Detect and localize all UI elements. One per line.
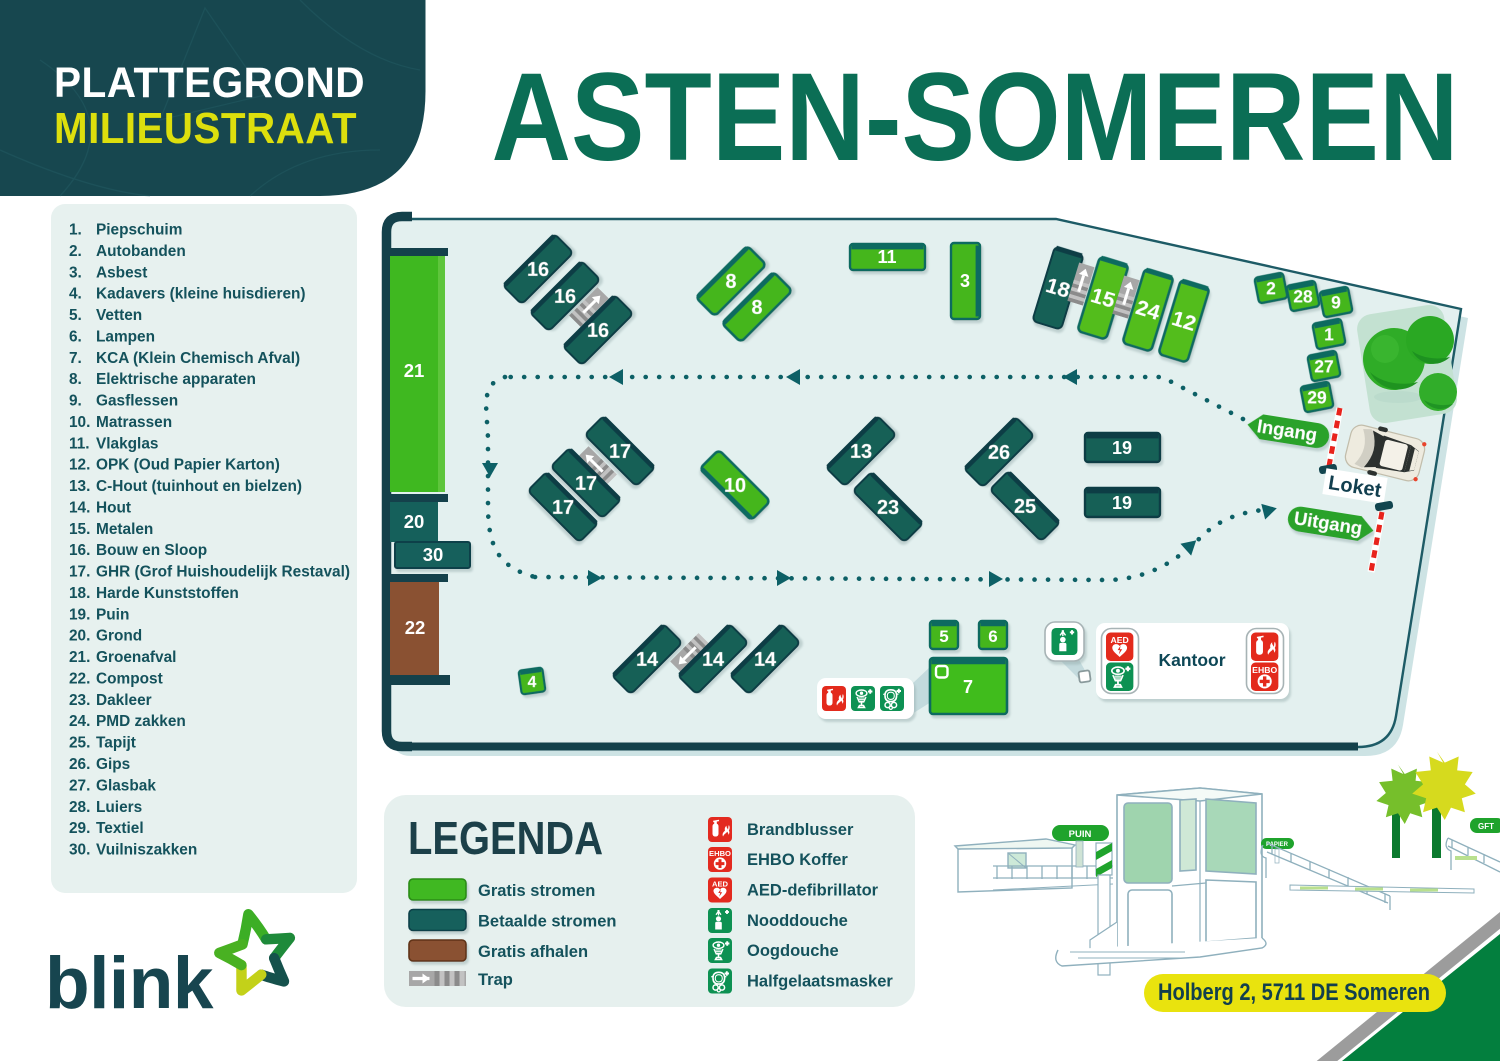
svg-text:1.: 1. xyxy=(69,222,82,239)
svg-text:14.: 14. xyxy=(69,499,90,516)
svg-text:6: 6 xyxy=(988,627,997,646)
svg-text:Harde Kunststoffen: Harde Kunststoffen xyxy=(96,585,239,602)
svg-text:21.: 21. xyxy=(69,649,90,666)
svg-text:Glasbak: Glasbak xyxy=(96,777,156,794)
svg-text:11: 11 xyxy=(877,247,896,267)
svg-text:17: 17 xyxy=(552,497,574,519)
svg-text:10: 10 xyxy=(724,475,746,497)
svg-text:MILIEUSTRAAT: MILIEUSTRAAT xyxy=(54,105,357,153)
svg-text:GFT: GFT xyxy=(1478,822,1494,831)
svg-text:23.: 23. xyxy=(69,692,90,709)
svg-text:Hout: Hout xyxy=(96,499,131,516)
svg-text:Vlakglas: Vlakglas xyxy=(96,435,158,452)
svg-text:13.: 13. xyxy=(69,478,90,495)
svg-text:26.: 26. xyxy=(69,756,90,773)
svg-text:Lampen: Lampen xyxy=(96,328,155,345)
svg-text:Kadavers (kleine huisdieren): Kadavers (kleine huisdieren) xyxy=(96,286,306,303)
svg-text:17.: 17. xyxy=(69,564,90,581)
svg-text:Trap: Trap xyxy=(478,971,513,989)
svg-text:Betaalde stromen: Betaalde stromen xyxy=(478,913,616,931)
svg-text:Compost: Compost xyxy=(96,671,163,688)
svg-text:16: 16 xyxy=(527,259,549,281)
svg-text:2.: 2. xyxy=(69,243,82,260)
svg-text:PUIN: PUIN xyxy=(1069,829,1092,840)
svg-text:22: 22 xyxy=(405,617,426,638)
svg-text:16.: 16. xyxy=(69,542,90,559)
svg-text:ASTEN-SOMEREN: ASTEN-SOMEREN xyxy=(492,48,1459,187)
svg-text:12.: 12. xyxy=(69,457,90,474)
svg-text:Gips: Gips xyxy=(96,756,130,773)
svg-text:4: 4 xyxy=(528,674,537,691)
svg-text:3: 3 xyxy=(960,271,970,291)
svg-text:20.: 20. xyxy=(69,628,90,645)
svg-text:27: 27 xyxy=(1314,356,1333,376)
svg-text:C-Hout (tuinhout en bielzen): C-Hout (tuinhout en bielzen) xyxy=(96,478,302,495)
svg-text:28: 28 xyxy=(1293,286,1313,306)
svg-text:Vetten: Vetten xyxy=(96,307,142,324)
svg-text:21: 21 xyxy=(404,360,425,381)
svg-text:Bouw en Sloop: Bouw en Sloop xyxy=(96,542,207,559)
svg-text:3.: 3. xyxy=(69,264,82,281)
svg-text:Gratis afhalen: Gratis afhalen xyxy=(478,943,588,961)
svg-text:19: 19 xyxy=(1112,493,1132,513)
svg-text:Vuilniszakken: Vuilniszakken xyxy=(96,842,197,859)
svg-text:14: 14 xyxy=(702,649,725,671)
svg-text:Dakleer: Dakleer xyxy=(96,692,152,709)
svg-text:Gratis stromen: Gratis stromen xyxy=(478,882,595,900)
svg-text:LEGENDA: LEGENDA xyxy=(408,812,603,864)
svg-text:6.: 6. xyxy=(69,328,82,345)
svg-text:8.: 8. xyxy=(69,371,82,388)
svg-text:Luiers: Luiers xyxy=(96,799,142,816)
svg-text:5: 5 xyxy=(939,627,948,646)
svg-text:30.: 30. xyxy=(69,842,90,859)
svg-text:30: 30 xyxy=(423,544,444,565)
svg-text:29.: 29. xyxy=(69,820,90,837)
svg-text:13: 13 xyxy=(850,441,872,463)
svg-text:Piepschuim: Piepschuim xyxy=(96,222,182,239)
svg-text:27.: 27. xyxy=(69,777,90,794)
svg-text:PLATTEGROND: PLATTEGROND xyxy=(54,60,365,107)
svg-text:19.: 19. xyxy=(69,606,90,623)
svg-text:8: 8 xyxy=(725,271,736,293)
svg-text:16: 16 xyxy=(554,286,576,308)
svg-text:19: 19 xyxy=(1112,438,1132,458)
svg-text:Metalen: Metalen xyxy=(96,521,153,538)
svg-text:29: 29 xyxy=(1307,387,1327,407)
svg-text:Groenafval: Groenafval xyxy=(96,649,176,666)
svg-text:11.: 11. xyxy=(69,435,90,452)
svg-text:18.: 18. xyxy=(69,585,90,602)
svg-text:4.: 4. xyxy=(69,286,82,303)
svg-text:Asbest: Asbest xyxy=(96,264,147,281)
svg-text:23: 23 xyxy=(877,497,899,519)
svg-text:Gasflessen: Gasflessen xyxy=(96,393,178,410)
svg-text:Holberg 2, 5711 DE Someren: Holberg 2, 5711 DE Someren xyxy=(1158,979,1430,1006)
svg-text:Autobanden: Autobanden xyxy=(96,243,186,260)
svg-text:10.: 10. xyxy=(69,414,90,431)
svg-text:KCA (Klein Chemisch Afval): KCA (Klein Chemisch Afval) xyxy=(96,350,300,367)
svg-text:8: 8 xyxy=(751,297,762,319)
svg-text:Puin: Puin xyxy=(96,606,129,623)
svg-text:9: 9 xyxy=(1331,292,1341,312)
svg-text:OPK (Oud Papier Karton): OPK (Oud Papier Karton) xyxy=(96,457,280,474)
svg-text:blink: blink xyxy=(45,943,214,1024)
svg-text:Tapijt: Tapijt xyxy=(96,735,136,752)
svg-text:26: 26 xyxy=(988,442,1010,464)
svg-text:9.: 9. xyxy=(69,393,82,410)
svg-text:1: 1 xyxy=(1324,324,1334,344)
svg-text:20: 20 xyxy=(404,511,425,532)
svg-text:25: 25 xyxy=(1014,496,1036,518)
svg-text:17: 17 xyxy=(575,473,597,495)
svg-text:Halfgelaatsmasker: Halfgelaatsmasker xyxy=(747,973,893,991)
svg-text:AED-defibrillator: AED-defibrillator xyxy=(747,882,879,900)
svg-text:GHR (Grof Huishoudelijk Restav: GHR (Grof Huishoudelijk Restaval) xyxy=(96,564,350,581)
svg-text:Nooddouche: Nooddouche xyxy=(747,912,848,930)
svg-text:2: 2 xyxy=(1266,278,1276,298)
svg-text:Brandblusser: Brandblusser xyxy=(747,821,854,839)
svg-text:Elektrische apparaten: Elektrische apparaten xyxy=(96,371,256,388)
svg-text:Oogdouche: Oogdouche xyxy=(747,942,839,960)
svg-text:15.: 15. xyxy=(69,521,90,538)
svg-text:16: 16 xyxy=(587,320,609,342)
svg-text:5.: 5. xyxy=(69,307,82,324)
svg-text:14: 14 xyxy=(754,649,777,671)
svg-text:17: 17 xyxy=(609,441,631,463)
svg-text:Matrassen: Matrassen xyxy=(96,414,172,431)
svg-text:25.: 25. xyxy=(69,735,90,752)
svg-text:28.: 28. xyxy=(69,799,90,816)
svg-text:7: 7 xyxy=(963,677,973,697)
svg-text:22.: 22. xyxy=(69,671,90,688)
svg-text:EHBO Koffer: EHBO Koffer xyxy=(747,851,848,869)
svg-text:7.: 7. xyxy=(69,350,82,367)
svg-text:Kantoor: Kantoor xyxy=(1158,650,1225,670)
svg-text:PMD zakken: PMD zakken xyxy=(96,713,186,730)
svg-text:Grond: Grond xyxy=(96,628,142,645)
svg-text:Textiel: Textiel xyxy=(96,820,144,837)
svg-text:14: 14 xyxy=(636,649,659,671)
svg-text:24.: 24. xyxy=(69,713,90,730)
